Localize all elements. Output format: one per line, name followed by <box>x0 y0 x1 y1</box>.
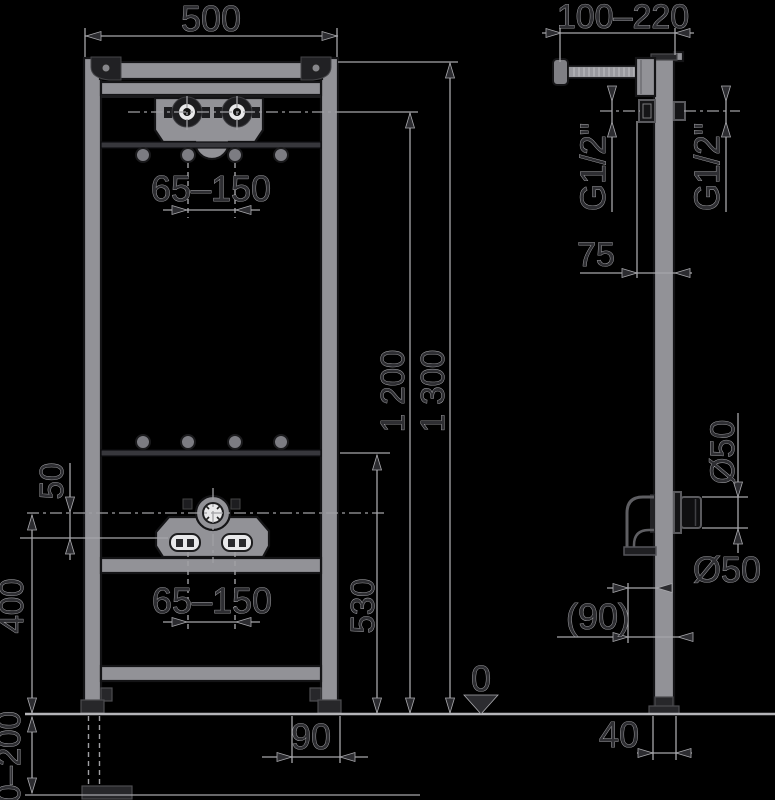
side-clip-left <box>101 688 112 701</box>
front-top-rail <box>100 62 322 79</box>
hole <box>274 435 288 449</box>
dim-dia50-outlet: Ø50 <box>702 413 748 553</box>
outlet-spigot <box>681 497 701 528</box>
anchor-holes-lower <box>136 435 288 449</box>
bracket-ear-left <box>183 499 192 509</box>
dim-label-0-200: 0–200 <box>0 711 27 800</box>
slot-left <box>170 534 200 551</box>
adjustable-foot-plate <box>82 786 132 799</box>
slot-insert <box>176 539 183 547</box>
technical-drawing: 0 500 65–150 65–150 <box>0 0 775 800</box>
side-clip-right <box>310 688 321 701</box>
dim-side-depth: 100–220 <box>542 0 694 62</box>
dim-label-90: 90 <box>291 716 331 757</box>
dim-depth-40: 40 <box>599 714 692 760</box>
corner-bolt-left <box>102 64 110 72</box>
outlet-flange <box>674 492 681 533</box>
dim-upper-spacing: 65–150 <box>151 163 271 218</box>
foot-right <box>318 700 341 713</box>
dim-label-65-150-upper: 65–150 <box>151 168 271 209</box>
anchor-bracket <box>636 58 655 96</box>
wall-anchor <box>553 58 655 96</box>
dim-label-dia50: Ø50 <box>693 549 761 590</box>
elbow-socket-end <box>624 547 656 555</box>
dim-dia50-pipe: Ø50 <box>607 549 761 643</box>
slot-insert <box>228 539 235 547</box>
dim-label-65-150-lower: 65–150 <box>152 580 272 621</box>
front-left-post <box>84 58 101 706</box>
elbow-outer <box>627 497 654 549</box>
threaded-rod <box>568 66 638 78</box>
dim-label-g12-front: G1/2" <box>574 123 613 211</box>
dim-thread-rear: G1/2" <box>688 86 731 212</box>
crossbar-upper <box>101 142 321 148</box>
dim-label-90-ref: (90) <box>566 596 630 637</box>
crossbar-middle <box>101 450 321 456</box>
hole <box>136 435 150 449</box>
dim-height-400: 400 <box>0 515 37 713</box>
dim-adjust-0-200: 0–200 <box>0 711 37 800</box>
front-right-post <box>321 58 338 706</box>
crossbar-lower <box>101 558 321 573</box>
through-sleeve <box>650 494 655 533</box>
side-profile <box>654 57 674 707</box>
hole <box>181 435 195 449</box>
dim-label-1200: 1 200 <box>374 350 411 433</box>
anchor-head <box>553 59 568 85</box>
dim-label-400: 400 <box>0 578 30 633</box>
dim-thread-front: G1/2" <box>574 86 617 212</box>
datum-zero-label: 0 <box>471 658 491 699</box>
foot-left <box>81 700 104 713</box>
dim-front-width: 500 <box>85 0 338 57</box>
bracket-ear-right <box>231 499 240 509</box>
dim-depth-90: 90 <box>262 716 368 763</box>
dim-label-40: 40 <box>599 714 639 755</box>
hole <box>136 148 150 162</box>
slot-insert <box>187 539 194 547</box>
centerlines <box>27 96 740 563</box>
slot-insert <box>239 539 246 547</box>
hole <box>228 148 242 162</box>
hole <box>181 148 195 162</box>
dim-height-530: 530 <box>340 453 390 713</box>
corner-bolt-right <box>312 64 320 72</box>
dim-label-50: 50 <box>33 463 70 500</box>
dim-label-500: 500 <box>181 0 241 39</box>
installation-frame-drawing: 0 500 65–150 65–150 <box>0 0 775 800</box>
water-connection-front <box>639 100 655 122</box>
hole <box>228 435 242 449</box>
dim-label-530: 530 <box>344 578 381 633</box>
hole <box>274 148 288 162</box>
water-connection-rear <box>674 102 685 120</box>
dim-label-100-220: 100–220 <box>557 0 689 36</box>
slot-right <box>222 534 252 551</box>
crossbar-bottom <box>101 666 321 681</box>
dim-label-g12-rear: G1/2" <box>688 123 727 211</box>
front-second-rail <box>101 82 321 95</box>
dim-label-75: 75 <box>577 236 615 274</box>
dim-label-1300: 1 300 <box>414 350 451 433</box>
dim-label-dia50-rotated: Ø50 <box>704 420 742 484</box>
